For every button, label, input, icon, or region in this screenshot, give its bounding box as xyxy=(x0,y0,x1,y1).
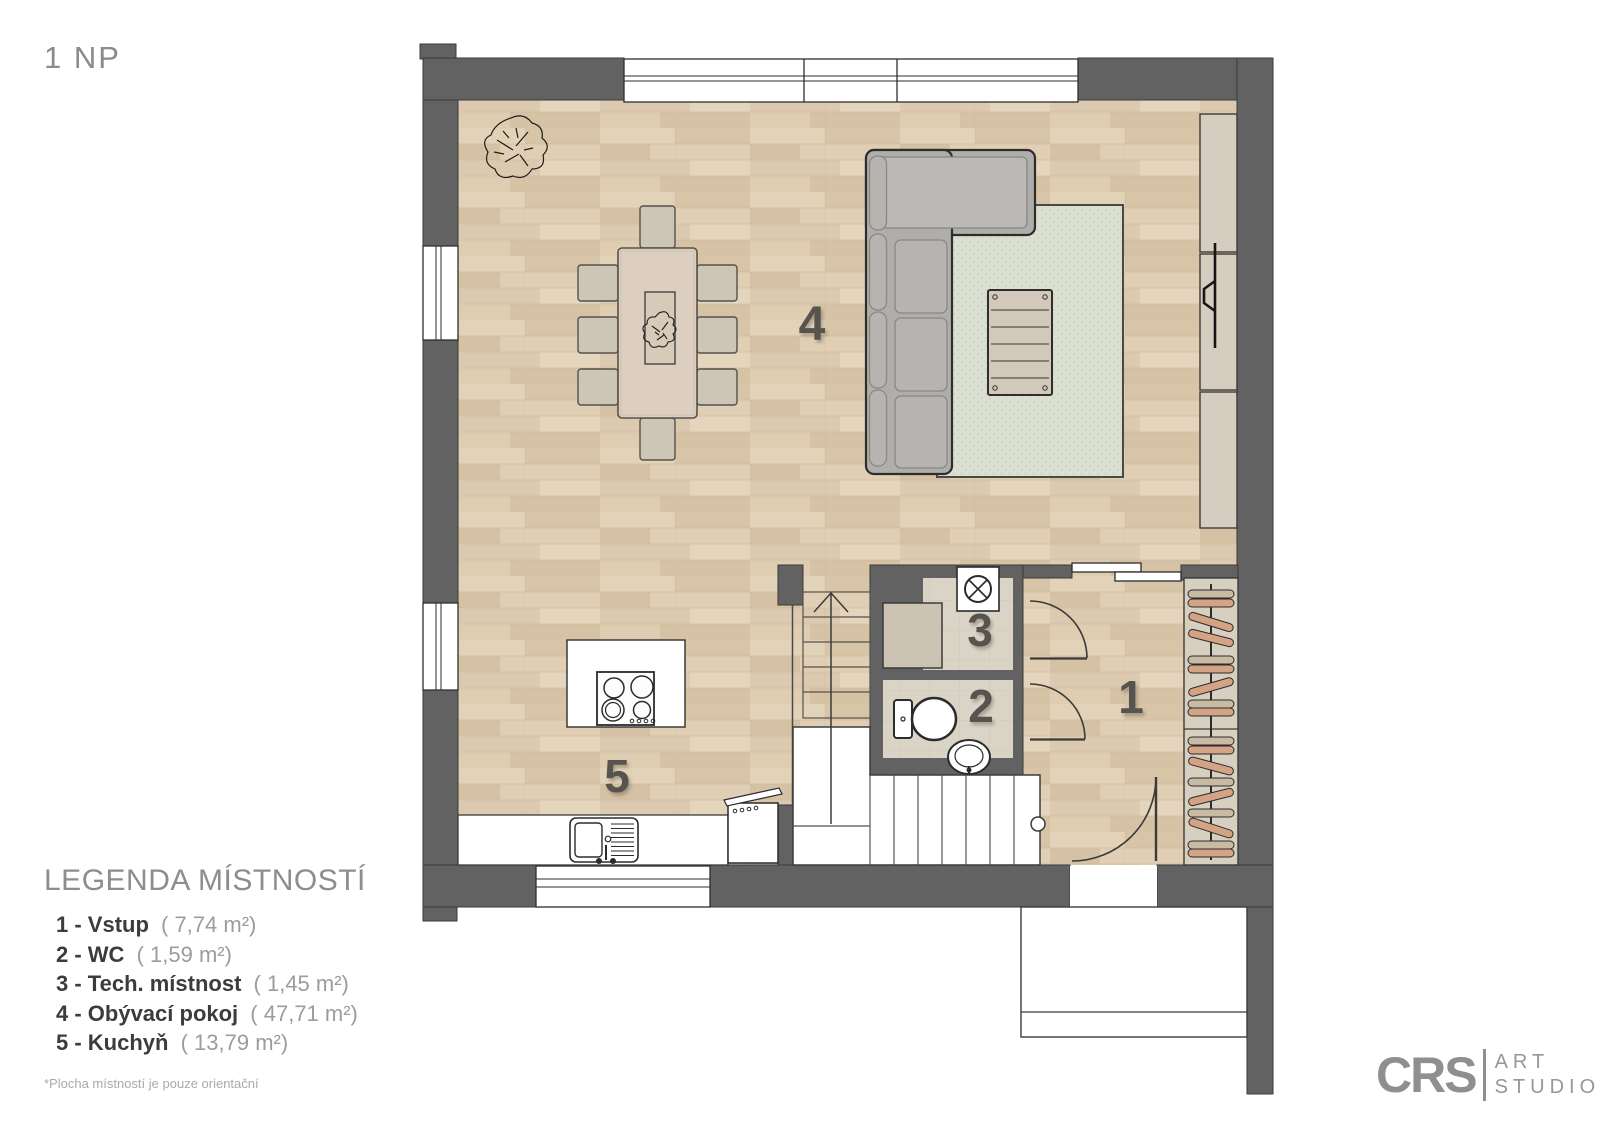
legend-item-area: ( 13,79 m²) xyxy=(181,1030,289,1055)
table-tray xyxy=(645,292,675,364)
coffee-table xyxy=(988,290,1052,395)
logo-divider xyxy=(1483,1049,1486,1101)
logo-brand: CRS xyxy=(1376,1046,1476,1104)
cooktop-icon xyxy=(597,672,655,725)
legend-item: 5 - Kuchyň ( 13,79 m²) xyxy=(56,1028,366,1058)
kitchen-island xyxy=(567,640,685,727)
legend-item-label: 4 - Obývací pokoj xyxy=(56,1001,238,1026)
legend-footnote: *Plocha místností je pouze orientační xyxy=(44,1076,259,1091)
legend-item-label: 3 - Tech. místnost xyxy=(56,971,241,996)
page-title: 1 NP xyxy=(44,40,121,76)
logo-art: ART xyxy=(1495,1050,1600,1075)
kitchen-window xyxy=(536,866,710,907)
legend-item-label: 5 - Kuchyň xyxy=(56,1030,168,1055)
logo-studio: STUDIO xyxy=(1495,1075,1600,1100)
legend-item: 3 - Tech. místnost ( 1,45 m²) xyxy=(56,969,366,999)
room-label-4: 4 xyxy=(799,298,826,351)
legend-item-area: ( 47,71 m²) xyxy=(250,1001,358,1026)
legend-title: LEGENDA MÍSTNOSTÍ xyxy=(44,864,366,898)
top-window xyxy=(624,59,1078,102)
left-window-upper xyxy=(423,246,458,340)
legend-item-area: ( 7,74 m²) xyxy=(161,912,256,937)
door-stop-icon xyxy=(1031,817,1045,831)
media-cabinet xyxy=(1200,114,1237,528)
studio-logo: CRS ART STUDIO xyxy=(1376,1046,1600,1104)
sink-icon xyxy=(570,818,638,864)
washbasin-icon xyxy=(948,740,990,774)
room-label-3: 3 xyxy=(967,604,993,656)
stairs-upper xyxy=(803,592,870,718)
left-window-lower xyxy=(423,603,458,690)
kitchen-counter xyxy=(458,815,728,865)
legend-item-label: 1 - Vstup xyxy=(56,912,149,937)
entry-door-threshold xyxy=(1070,866,1157,907)
legend-item-area: ( 1,59 m²) xyxy=(137,942,232,967)
legend-item-area: ( 1,45 m²) xyxy=(254,971,349,996)
legend-item: 4 - Obývací pokoj ( 47,71 m²) xyxy=(56,999,366,1029)
legend-item: 1 - Vstup ( 7,74 m²) xyxy=(56,910,366,940)
legend-item-label: 2 - WC xyxy=(56,942,124,967)
wardrobe xyxy=(1184,578,1238,865)
legend: LEGENDA MÍSTNOSTÍ 1 - Vstup ( 7,74 m²) 2… xyxy=(44,864,366,1058)
toilet-icon xyxy=(894,698,956,740)
floor-plan-page: 1 NP xyxy=(0,0,1600,1130)
porch xyxy=(1021,907,1247,1037)
room-label-2: 2 xyxy=(968,680,994,732)
legend-item: 2 - WC ( 1,59 m²) xyxy=(56,940,366,970)
tech-room-cabinet xyxy=(883,603,942,668)
room-label-1: 1 xyxy=(1118,671,1144,723)
room-label-5: 5 xyxy=(604,750,630,802)
